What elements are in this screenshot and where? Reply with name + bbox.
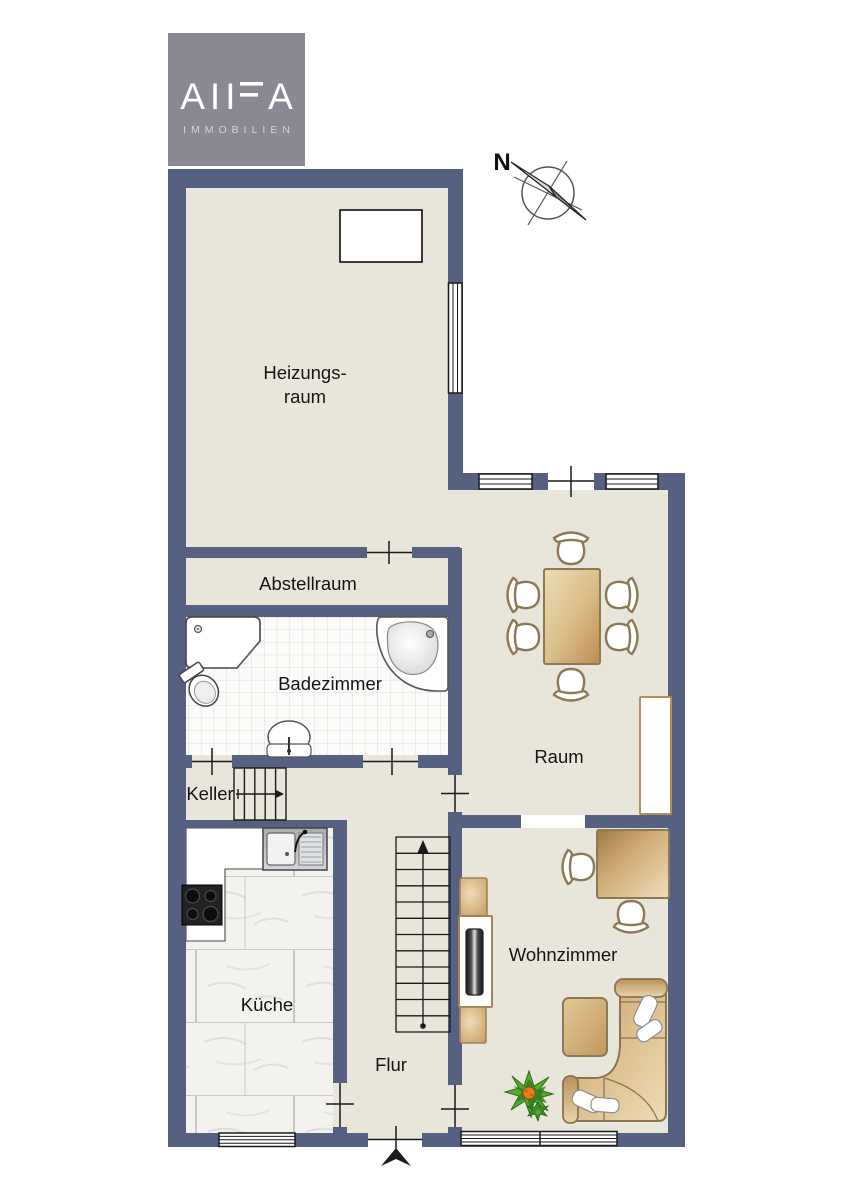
room-label-flur: Flur (375, 1054, 407, 1075)
washbasin (267, 721, 311, 757)
cabinet (460, 1007, 486, 1043)
room-label-keller: Keller (186, 783, 233, 804)
dining-chair (554, 669, 588, 701)
plant-flower (523, 1087, 535, 1099)
desk-chair (563, 850, 595, 884)
compass-needle-south (549, 186, 586, 220)
dining-chair (606, 578, 638, 612)
window-kueche (219, 1133, 295, 1147)
window-raum-right (606, 474, 658, 489)
window-wohnzimmer (461, 1132, 617, 1146)
tv-screen (466, 929, 483, 995)
dining-table (544, 569, 600, 664)
heater-unit (340, 210, 422, 262)
room-label-heizungsraum: Heizungs- (263, 362, 346, 383)
room-label-raum: Raum (534, 746, 583, 767)
cabinet (460, 878, 487, 916)
sofa-armrest (615, 979, 667, 997)
room-label-wohnzimmer: Wohnzimmer (509, 944, 618, 965)
desk (597, 830, 669, 898)
entrance-arrow (381, 1148, 411, 1166)
stove (182, 885, 222, 925)
bathtub-faucet (427, 631, 434, 638)
dining-chair (554, 533, 588, 565)
window-raum-left (479, 474, 532, 489)
room-label-abstellraum: Abstellraum (259, 573, 357, 594)
staircase-down-keller (234, 768, 286, 820)
kitchen-sink (263, 828, 327, 870)
floorplan-page: A I I F A IMMOBILIEN (0, 0, 848, 1200)
dining-chair (508, 620, 540, 654)
dining-chair (606, 620, 638, 654)
window-heizungsraum (449, 283, 463, 393)
sideboard (640, 697, 671, 814)
compass-rose: N (493, 149, 586, 225)
desk-chair (614, 901, 648, 933)
room-label-badezimmer: Badezimmer (278, 673, 382, 694)
room-label-kueche: Küche (241, 994, 293, 1015)
room-label-heizungsraum-2: raum (284, 386, 326, 407)
dining-chair (508, 578, 540, 612)
opening-raum-wohnzimmer (521, 815, 585, 828)
coffee-table (563, 998, 607, 1056)
floor-plan-svg: N Heizungs- raum Abstellraum Badezimmer … (0, 0, 848, 1200)
north-label: N (493, 149, 510, 176)
